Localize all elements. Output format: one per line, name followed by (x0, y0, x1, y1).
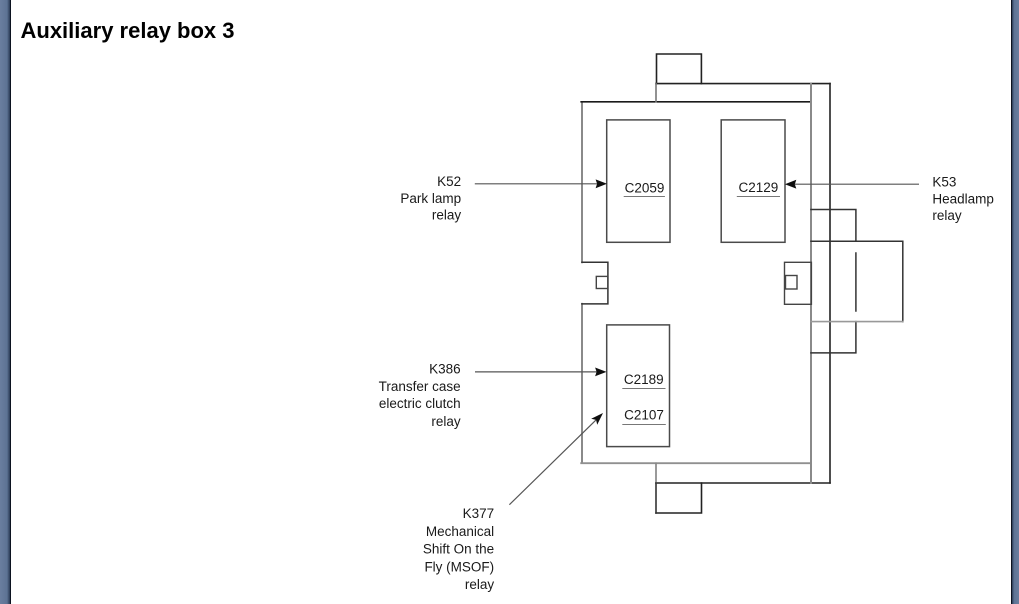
svg-text:Park lamp: Park lamp (400, 191, 461, 206)
svg-text:K377: K377 (463, 506, 495, 521)
svg-text:relay: relay (465, 577, 495, 592)
svg-text:C2059: C2059 (625, 180, 665, 195)
svg-text:Mechanical: Mechanical (426, 524, 494, 539)
svg-text:C2189: C2189 (624, 372, 664, 387)
svg-text:K52: K52 (437, 174, 461, 189)
svg-text:Shift On the: Shift On the (423, 542, 494, 557)
svg-text:K53: K53 (932, 175, 956, 190)
svg-text:K386: K386 (429, 361, 461, 376)
svg-text:Fly (MSOF): Fly (MSOF) (424, 559, 494, 574)
svg-text:relay: relay (432, 208, 462, 223)
svg-text:C2107: C2107 (624, 407, 664, 422)
svg-text:Auxiliary relay box 3: Auxiliary relay box 3 (21, 18, 235, 43)
svg-text:relay: relay (431, 414, 461, 429)
svg-text:Transfer case: Transfer case (379, 379, 461, 394)
svg-text:electric clutch: electric clutch (379, 396, 461, 411)
svg-text:C2129: C2129 (739, 180, 779, 195)
svg-text:relay: relay (932, 208, 962, 223)
svg-text:Headlamp: Headlamp (932, 191, 994, 206)
